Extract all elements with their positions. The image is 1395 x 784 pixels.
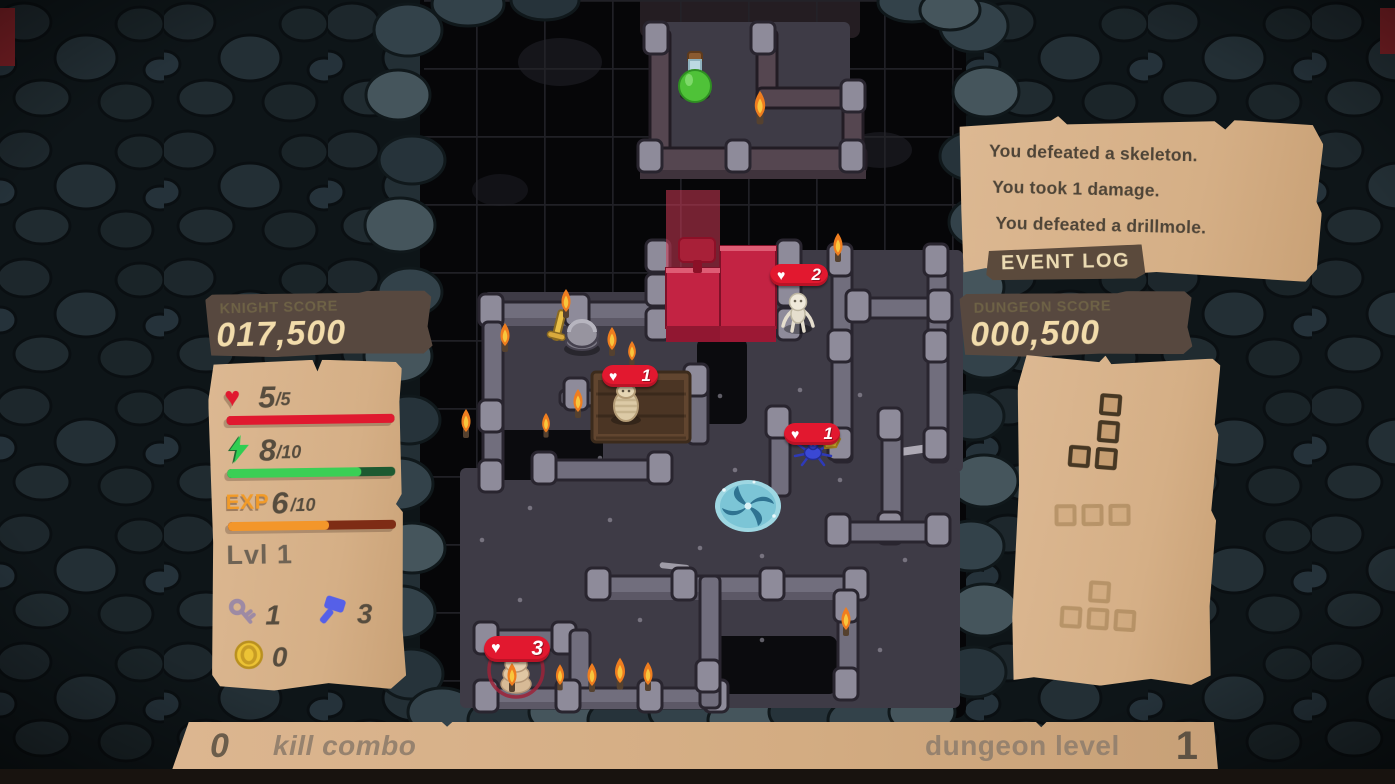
piece-t-cell bbox=[1113, 609, 1136, 632]
exp-current: 6 bbox=[271, 487, 289, 518]
hp-bar-fill bbox=[226, 414, 394, 425]
dungeon-score-value: 000,500 bbox=[960, 312, 1193, 351]
piece-i3-cell bbox=[1054, 504, 1076, 526]
inventory-row: 1 3 bbox=[227, 595, 392, 634]
worm-health-pill: ♥ 3 bbox=[484, 636, 550, 662]
heart-icon: ♥ bbox=[791, 427, 799, 441]
energy-bar-fill bbox=[227, 467, 362, 478]
hp-value: 2 bbox=[802, 265, 821, 285]
exp-label: EXP bbox=[226, 491, 270, 516]
hp-value: 3 bbox=[521, 637, 543, 661]
dungeon-level-value: 1 bbox=[1176, 724, 1198, 769]
piece-i3-cell bbox=[1081, 504, 1103, 526]
hp-row: ♥ 5 /5 bbox=[224, 379, 388, 413]
event-log-entry: You defeated a drillmole. bbox=[995, 213, 1297, 241]
lightning-icon bbox=[225, 435, 259, 465]
piece-j-cell bbox=[1068, 445, 1092, 469]
heart-icon: ♥ bbox=[777, 268, 785, 282]
exp-bar bbox=[228, 520, 396, 531]
key-count: 1 bbox=[265, 599, 281, 631]
heart-icon: ♥ bbox=[224, 383, 240, 410]
hp-bar bbox=[226, 414, 394, 425]
piece-j-cell bbox=[1099, 393, 1123, 417]
dungeon-level-label: dungeon level bbox=[925, 730, 1120, 762]
spider-health-pill: ♥ 1 bbox=[784, 423, 840, 445]
piece-queue-panel bbox=[1009, 353, 1220, 689]
bottom-dark-strip bbox=[0, 769, 1395, 784]
coin-icon bbox=[234, 640, 264, 675]
energy-current: 8 bbox=[259, 434, 277, 465]
kill-combo-value: 0 bbox=[210, 727, 229, 766]
energy-bar bbox=[227, 467, 395, 478]
skeleton-health-pill: ♥ 2 bbox=[770, 264, 828, 286]
event-log-entry: You took 1 damage. bbox=[992, 177, 1298, 205]
level-label: Lvl 1 bbox=[226, 538, 390, 571]
player-stats-panel: ♥ 5 /5 8 /10 EXP 6 /10 L bbox=[208, 359, 407, 692]
hp-current: 5 bbox=[258, 381, 276, 412]
piece-t-cell bbox=[1086, 607, 1109, 630]
coin-row: 0 bbox=[234, 638, 392, 675]
knight-score-banner: KNIGHT SCORE 017,500 bbox=[205, 289, 432, 359]
knight-score-value: 017,500 bbox=[206, 312, 433, 353]
piece-i3-cell bbox=[1108, 504, 1130, 526]
piece-j-cell bbox=[1094, 447, 1118, 471]
event-log-entry: You defeated a skeleton. bbox=[989, 141, 1299, 169]
exp-bar-fill bbox=[228, 521, 329, 531]
dungeon-score-banner: DUNGEON SCORE 000,500 bbox=[959, 290, 1192, 358]
drillmole-health-pill: ♥ 1 bbox=[602, 365, 658, 387]
game-screen: .r1{fill:#45555c;stroke:#10181b;stroke-w… bbox=[0, 0, 1395, 784]
piece-t-cell bbox=[1088, 580, 1111, 603]
hammer-count: 3 bbox=[357, 598, 373, 630]
energy-row: 8 /10 bbox=[225, 432, 389, 466]
bottom-status-bar: 0 kill combo dungeon level 1 bbox=[172, 722, 1218, 770]
energy-max: /10 bbox=[276, 442, 301, 463]
key-icon bbox=[227, 598, 257, 633]
exp-row: EXP 6 /10 bbox=[225, 485, 389, 519]
hammer-icon bbox=[315, 595, 350, 632]
kill-combo-label: kill combo bbox=[273, 730, 416, 762]
heart-icon: ♥ bbox=[609, 369, 617, 383]
heart-icon: ♥ bbox=[491, 641, 501, 657]
hp-value: 1 bbox=[632, 366, 651, 386]
piece-t-cell bbox=[1059, 605, 1082, 628]
hp-value: 1 bbox=[814, 424, 833, 444]
hp-max: /5 bbox=[275, 389, 290, 410]
exp-max: /10 bbox=[290, 494, 315, 515]
piece-j-cell bbox=[1097, 420, 1121, 444]
coin-count: 0 bbox=[272, 641, 288, 673]
